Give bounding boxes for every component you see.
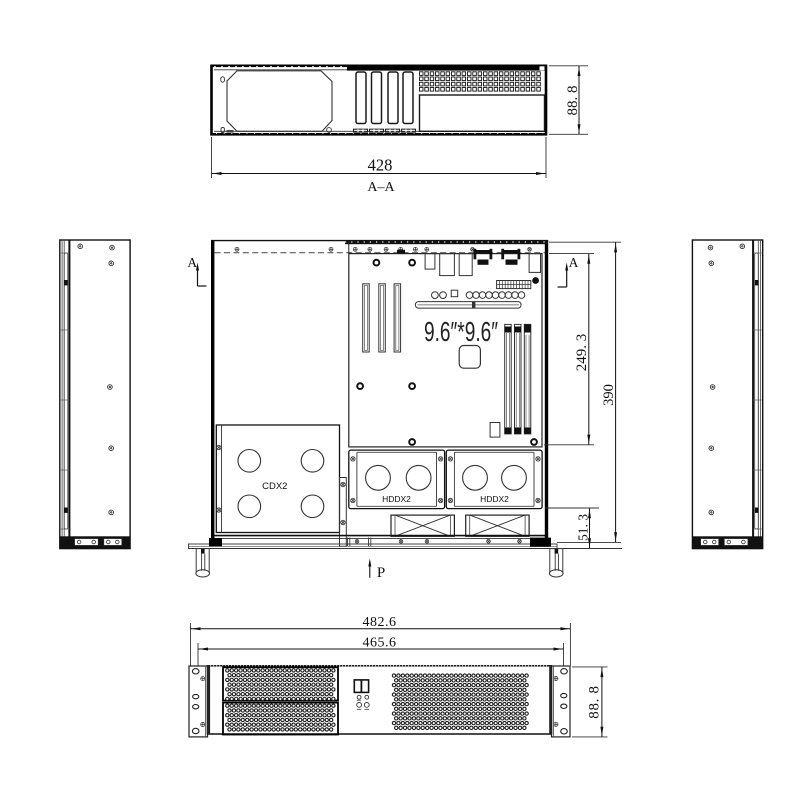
svg-text:482.6: 482.6 xyxy=(363,615,397,630)
svg-text:9.6″*9.6″: 9.6″*9.6″ xyxy=(424,316,498,347)
svg-text:A: A xyxy=(187,255,197,270)
svg-text:A–A: A–A xyxy=(367,180,395,195)
svg-text:A: A xyxy=(569,255,579,270)
svg-text:249. 3: 249. 3 xyxy=(574,334,590,372)
svg-text:390: 390 xyxy=(601,384,617,406)
svg-text:CDX2: CDX2 xyxy=(262,481,287,492)
svg-text:P: P xyxy=(377,565,385,581)
svg-text:465.6: 465.6 xyxy=(363,636,397,651)
svg-text:51. 3: 51. 3 xyxy=(576,514,591,541)
svg-text:88. 8: 88. 8 xyxy=(565,86,581,116)
svg-text:HDDX2: HDDX2 xyxy=(382,494,411,504)
svg-text:428: 428 xyxy=(368,156,393,175)
svg-text:HDDX2: HDDX2 xyxy=(480,494,509,504)
svg-text:88. 8: 88. 8 xyxy=(587,685,603,719)
